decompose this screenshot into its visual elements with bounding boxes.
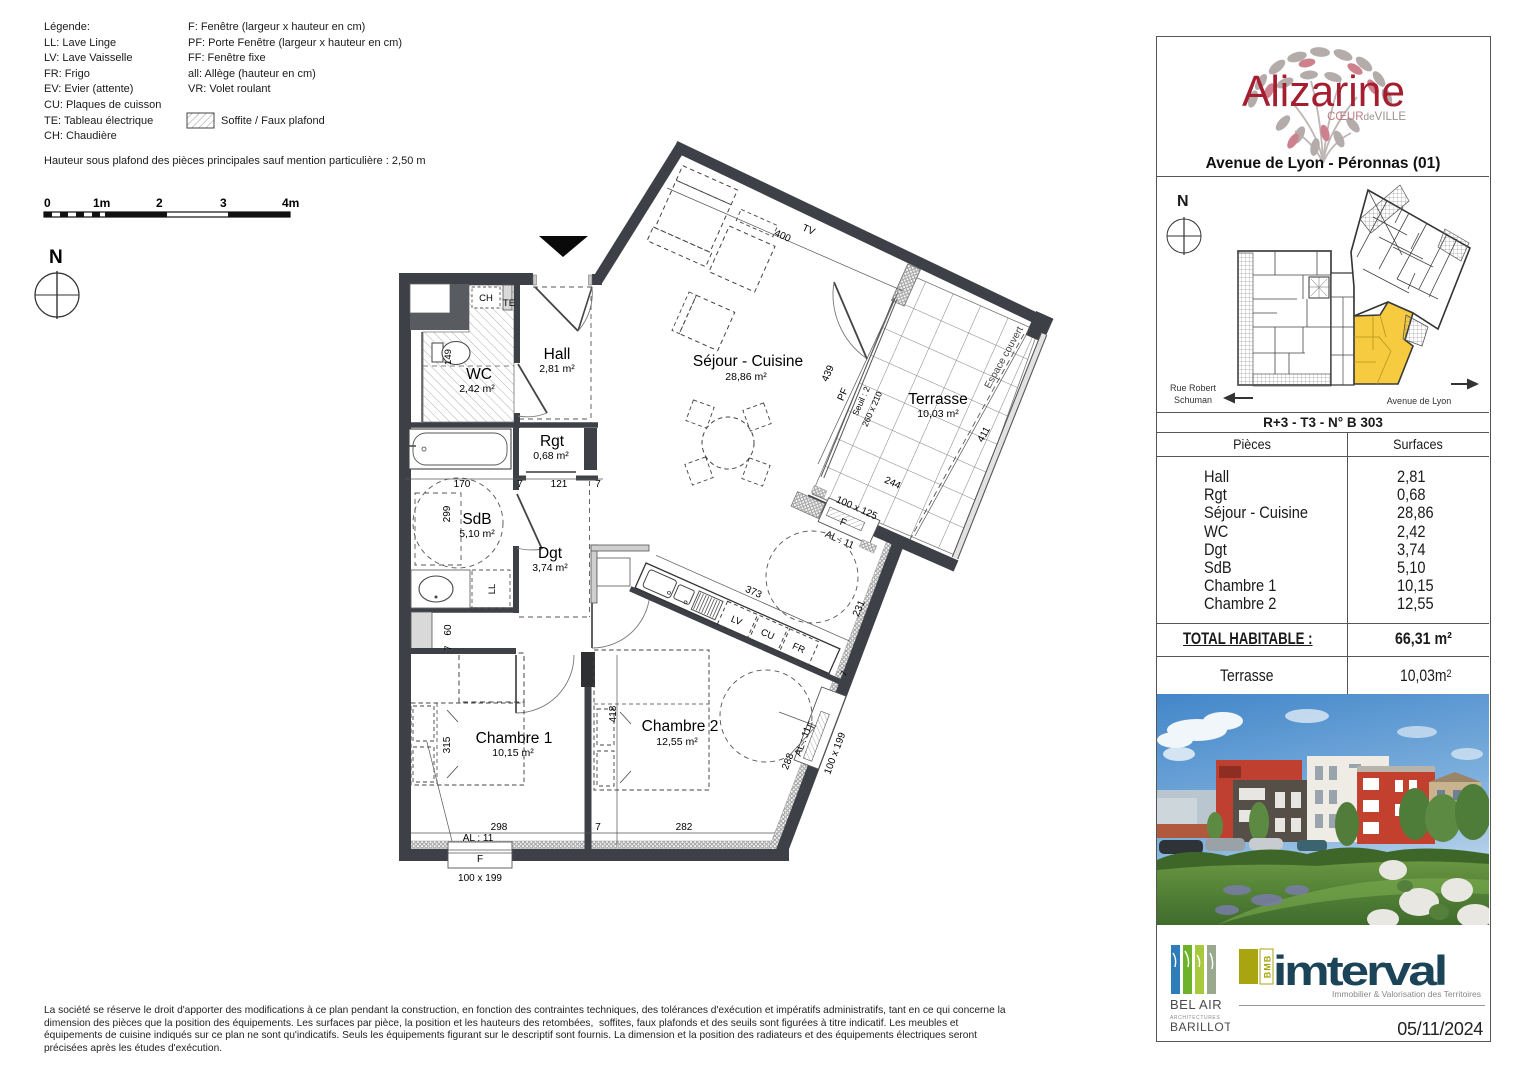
svg-text:F: F bbox=[477, 854, 483, 865]
svg-text:7: 7 bbox=[443, 645, 453, 650]
svg-text:10,15 m²: 10,15 m² bbox=[492, 747, 534, 759]
svg-text:5,10 m²: 5,10 m² bbox=[459, 528, 495, 540]
svg-text:WC: WC bbox=[466, 366, 492, 383]
svg-text:100 x 199: 100 x 199 bbox=[458, 873, 502, 884]
svg-text:Rue Robert: Rue Robert bbox=[1170, 383, 1217, 393]
svg-text:Schuman: Schuman bbox=[1174, 395, 1212, 405]
svg-text:7: 7 bbox=[595, 479, 601, 490]
svg-text:BEL AIR: BEL AIR bbox=[1170, 997, 1222, 1012]
svg-text:400: 400 bbox=[773, 228, 793, 245]
svg-text:CH: CH bbox=[479, 293, 493, 304]
svg-text:Terrasse: Terrasse bbox=[908, 391, 967, 408]
svg-text:10,03 m²: 10,03 m² bbox=[917, 408, 959, 420]
svg-text:TV: TV bbox=[800, 223, 816, 238]
svg-text:Hall: Hall bbox=[544, 346, 571, 363]
svg-text:373: 373 bbox=[743, 584, 763, 601]
svg-text:imterval: imterval bbox=[1273, 947, 1445, 994]
svg-text:SdB: SdB bbox=[462, 511, 491, 528]
svg-text:418: 418 bbox=[608, 705, 619, 722]
svg-text:282: 282 bbox=[676, 822, 693, 833]
svg-text:LL: LL bbox=[487, 584, 498, 595]
svg-text:298: 298 bbox=[491, 822, 508, 833]
svg-text:7: 7 bbox=[595, 822, 601, 833]
svg-text:7: 7 bbox=[517, 479, 523, 490]
svg-text:Alizarine: Alizarine bbox=[1242, 67, 1405, 116]
svg-text:Dgt: Dgt bbox=[538, 545, 563, 562]
svg-text:3,74 m²: 3,74 m² bbox=[532, 562, 568, 574]
svg-text:12,55 m²: 12,55 m² bbox=[656, 736, 698, 748]
svg-text:Rgt: Rgt bbox=[540, 433, 565, 450]
svg-text:121: 121 bbox=[551, 479, 568, 490]
svg-text:2,42 m²: 2,42 m² bbox=[459, 383, 495, 395]
svg-text:0,68 m²: 0,68 m² bbox=[533, 450, 569, 462]
svg-text:28,86 m²: 28,86 m² bbox=[725, 371, 767, 383]
svg-text:Avenue de Lyon: Avenue de Lyon bbox=[1387, 396, 1452, 406]
svg-text:AL : 11: AL : 11 bbox=[463, 833, 494, 844]
svg-text:2,81 m²: 2,81 m² bbox=[539, 363, 575, 375]
svg-text:N: N bbox=[1177, 193, 1189, 210]
svg-text:299: 299 bbox=[442, 505, 453, 522]
svg-text:Chambre 2: Chambre 2 bbox=[642, 718, 719, 735]
svg-text:BMB: BMB bbox=[1263, 955, 1273, 979]
svg-text:TE: TE bbox=[503, 298, 515, 309]
svg-text:439: 439 bbox=[820, 363, 837, 383]
svg-text:Chambre 1: Chambre 1 bbox=[476, 730, 553, 747]
svg-text:315: 315 bbox=[442, 736, 453, 753]
svg-text:PF: PF bbox=[836, 387, 851, 403]
svg-text:Immobilier & Valorisation des: Immobilier & Valorisation des Territoire… bbox=[1332, 989, 1481, 999]
svg-text:170: 170 bbox=[454, 479, 471, 490]
svg-text:60: 60 bbox=[443, 624, 454, 636]
svg-text:149: 149 bbox=[443, 349, 454, 365]
svg-text:CŒURdeVILLE: CŒURdeVILLE bbox=[1327, 111, 1406, 123]
svg-text:Séjour - Cuisine: Séjour - Cuisine bbox=[693, 353, 803, 370]
